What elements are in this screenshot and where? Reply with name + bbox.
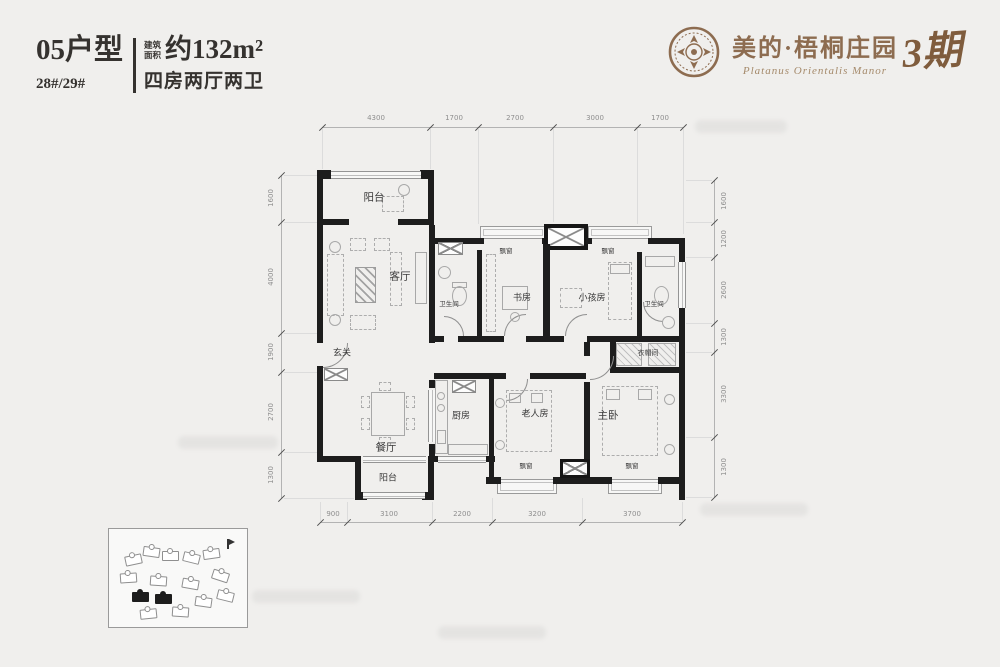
duct-shaft-icon [560,459,590,478]
site-flag-icon [227,539,229,549]
highlighted-building [132,592,149,602]
site-plan-thumbnail [108,528,248,628]
dim-top-3: 2700 [506,114,524,122]
plant-icon [398,184,410,196]
brand-emblem-icon [668,26,720,78]
dim-left-3: 1900 [267,343,275,361]
watermark [252,590,360,603]
area-label: 建筑 面积 [144,41,161,61]
pillow [606,389,620,400]
pillow [531,393,543,403]
dim-bottom-2: 3100 [380,510,398,518]
dim-left-4: 2700 [267,403,275,421]
dim-bottom-1: 900 [326,510,339,518]
floorplan-page: 05户型 28#/29# 建筑 面积 约132m² 四房两厅两卫 [0,0,1000,667]
brand-logo: 美的·梧桐庄园 Platanus Orientalis Manor 3期 [668,26,962,78]
dim-right-1: 1600 [720,192,728,210]
plant-icon [664,444,675,455]
highlighted-building [155,594,172,604]
kitchen-sink [437,430,446,444]
building-numbers: 28#/29# [36,76,123,93]
layout-description: 四房两厅两卫 [144,66,264,93]
plant-icon [329,241,341,253]
room-label-bay4: 飘窗 [626,460,639,470]
burner-icon [437,404,445,412]
sofa [327,254,344,316]
watermark [178,436,278,449]
room-label-kitchen: 厨房 [452,409,470,422]
room-label-dining: 餐厅 [376,440,397,455]
burner-icon [437,392,445,400]
rug [355,267,376,303]
shower-box [438,242,463,255]
kitchen-counter [448,444,488,455]
dim-right-6: 1300 [720,458,728,476]
dim-top-4: 3000 [586,114,604,122]
dim-bottom-5: 3700 [623,510,641,518]
brand-name-en: Platanus Orientalis Manor [743,65,887,77]
dim-left-5: 1300 [267,466,275,484]
room-label-bay3: 飘窗 [520,460,533,470]
unit-type-title: 05户型 [36,36,123,65]
dim-top-2: 1700 [445,114,463,122]
pillow [509,393,521,403]
watermark [438,626,546,639]
tv-cabinet [415,252,427,304]
room-label-elderly: 老人房 [521,407,548,420]
bookshelf [486,254,496,332]
dining-table [371,392,405,436]
dim-bottom-4: 3200 [528,510,546,518]
plant-icon [329,314,341,326]
room-label-bath1: 卫生间 [439,298,459,308]
room-label-bath2: 卫生间 [644,298,664,308]
room-label-master: 主卧 [598,408,619,423]
header-divider [133,38,136,93]
master-door-arc [590,356,614,380]
dim-right-5: 3300 [720,385,728,403]
sink-icon [438,266,451,279]
room-label-balcony-bottom: 阳台 [379,471,397,484]
room-label-bay2: 飘窗 [602,245,615,255]
room-label-living: 客厅 [390,269,411,284]
area-value: 约132m² [165,36,263,63]
room-label-balcony-top: 阳台 [364,190,385,205]
dim-left-2: 4000 [267,268,275,286]
kids-door-arc [565,314,587,336]
sink-icon [662,316,675,329]
duct-shaft-icon [544,224,588,250]
chair-icon [510,312,520,322]
dim-right-4: 1300 [720,328,728,346]
unit-info-header: 05户型 28#/29# 建筑 面积 约132m² 四房两厅两卫 [36,36,264,93]
room-label-bay1: 飘窗 [500,245,513,255]
dim-top-5: 1700 [651,114,669,122]
watermark [700,503,808,516]
plant-icon [495,440,505,450]
dim-left-1: 1600 [267,189,275,207]
dim-right-2: 1200 [720,230,728,248]
vanity-counter [645,256,675,267]
fridge [452,380,476,393]
room-label-study: 书房 [513,291,531,304]
plant-icon [664,394,675,405]
entry-cabinet [324,368,348,381]
brand-phase: 3期 [901,32,963,72]
room-label-entry: 玄关 [333,346,351,359]
room-label-kids: 小孩房 [578,291,605,304]
dim-bottom-3: 2200 [453,510,471,518]
pillow [638,389,652,400]
room-label-closet: 衣帽间 [638,348,659,358]
dim-top-1: 4300 [367,114,385,122]
watermark [695,120,787,133]
bath1-door-arc [444,316,464,336]
plant-icon [495,398,505,408]
dim-right-3: 2600 [720,281,728,299]
brand-name-cn: 美的·梧桐庄园 [732,28,898,63]
pillow [610,264,630,274]
